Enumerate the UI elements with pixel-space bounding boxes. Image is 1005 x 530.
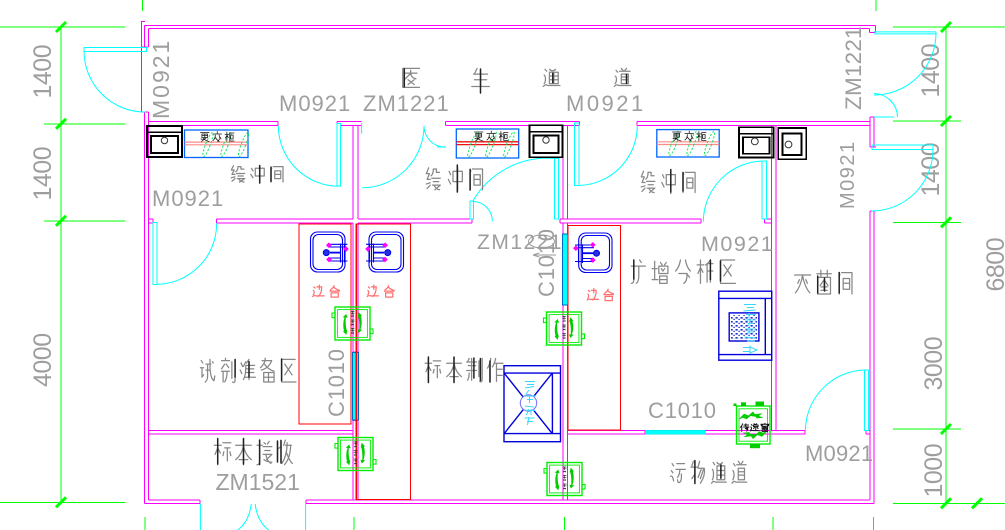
svg-text:C1010: C1010 xyxy=(324,348,349,417)
svg-text:1400: 1400 xyxy=(917,143,945,197)
svg-text:M0921: M0921 xyxy=(805,441,873,466)
svg-text:1400: 1400 xyxy=(917,44,945,98)
svg-text:6800: 6800 xyxy=(982,238,1005,292)
svg-text:C1010: C1010 xyxy=(648,398,717,423)
svg-text:1400: 1400 xyxy=(29,147,57,201)
svg-text:3000: 3000 xyxy=(920,337,948,391)
svg-text:M0921: M0921 xyxy=(701,232,774,256)
svg-text:1400: 1400 xyxy=(29,45,57,99)
svg-text:M0921: M0921 xyxy=(279,91,351,116)
svg-text:4000: 4000 xyxy=(29,333,57,387)
svg-text:M0921: M0921 xyxy=(837,140,859,209)
svg-text:ZM1221: ZM1221 xyxy=(363,91,450,116)
svg-text:M0921: M0921 xyxy=(148,39,174,119)
svg-text:ZM1521: ZM1521 xyxy=(216,469,300,495)
svg-text:ZM1221: ZM1221 xyxy=(841,26,866,110)
svg-text:M0921: M0921 xyxy=(152,186,224,211)
svg-text:1000: 1000 xyxy=(920,444,948,498)
svg-text:C1010: C1010 xyxy=(534,228,559,297)
svg-text:M0921: M0921 xyxy=(566,91,646,116)
